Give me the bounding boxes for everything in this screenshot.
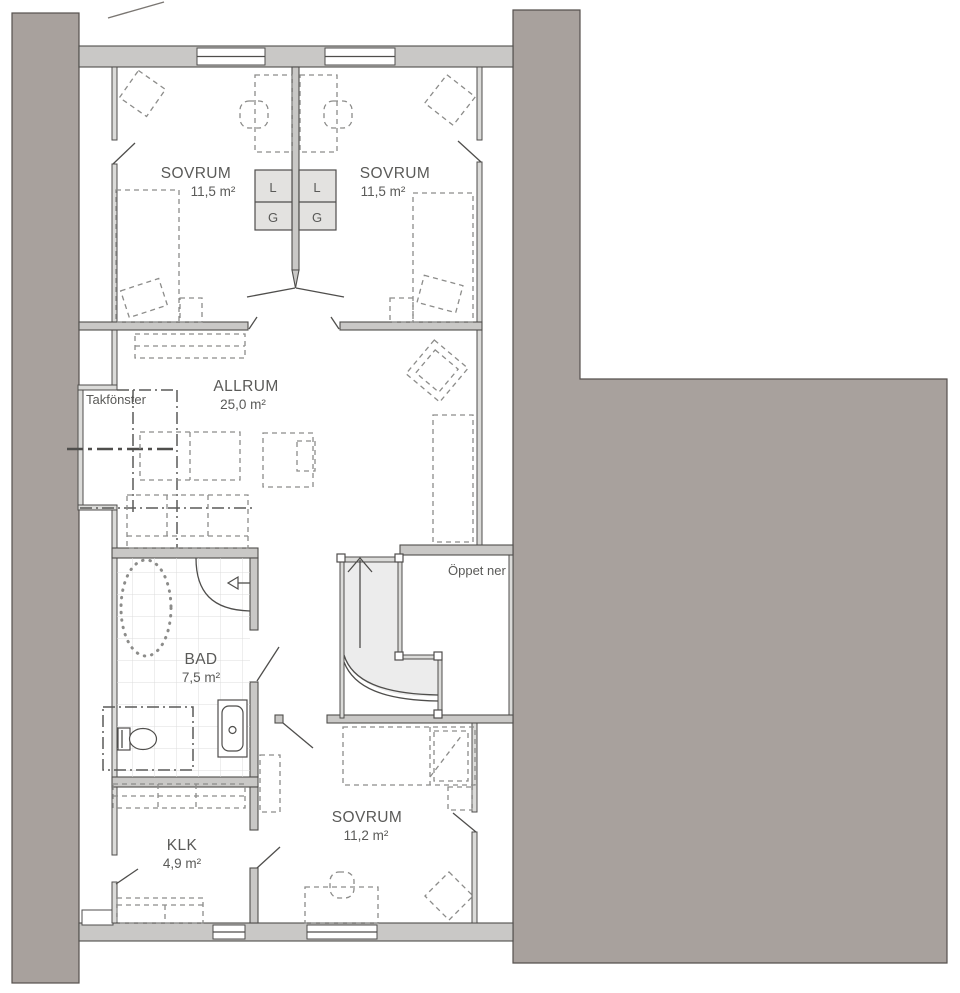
- wall-divider-tip: [292, 270, 299, 288]
- chair-icon: [330, 872, 354, 898]
- wall-bath-klk: [112, 777, 258, 787]
- floor-plan-drawing: L G L G: [0, 0, 960, 993]
- room-area-sovrum-left: 11,5 m²: [191, 184, 236, 199]
- wall-jog-top: [78, 385, 117, 390]
- door-storage-bottom-right: [453, 813, 476, 832]
- armchair-icon: [120, 71, 166, 117]
- knee-wall-right-a: [477, 67, 482, 140]
- staircase: [337, 554, 442, 718]
- bed-icon: [343, 727, 475, 785]
- knee-wall-left-c: [112, 510, 117, 548]
- door-sovrum-right: [296, 288, 344, 297]
- door-storage-top-right: [458, 141, 481, 162]
- desk-icon: [300, 75, 337, 152]
- nightstand-icon: [448, 787, 472, 810]
- bed-icon: [116, 190, 179, 322]
- wall-end-cap-left: [249, 317, 257, 329]
- wall-bottom: [79, 923, 513, 941]
- room-label-sovrum-left: SOVRUM: [161, 165, 231, 182]
- room-area-bad: 7,5 m²: [182, 670, 221, 685]
- window-top-right: [325, 48, 395, 65]
- door-sovrum-left: [247, 288, 295, 297]
- roof-right-block: [513, 10, 947, 963]
- sink-icon: [218, 700, 247, 757]
- wall-allrum-stairwell: [400, 545, 513, 555]
- railing-post: [434, 710, 442, 718]
- door-sovrum-bottom: [283, 723, 313, 748]
- wall-klk-east-lower: [250, 868, 258, 923]
- furniture-allrum: [127, 334, 473, 548]
- room-label-klk: KLK: [167, 837, 198, 854]
- knee-wall-left-e: [112, 882, 117, 923]
- tv-bench-icon: [140, 432, 240, 480]
- shelf-icon: [260, 755, 280, 812]
- wall-stair-bedroom: [327, 715, 513, 723]
- knee-wall-right-b: [477, 162, 482, 545]
- annotation-skylight: Takfönster: [86, 392, 147, 407]
- railing-right: [438, 659, 442, 715]
- closet-letter-l-right: L: [313, 180, 320, 195]
- roof-left-strip: [12, 13, 79, 983]
- gable-storage-window: [82, 910, 113, 925]
- room-area-sovrum-right: 11,5 m²: [361, 184, 406, 199]
- railing-post: [434, 652, 442, 660]
- room-area-sovrum-bottom: 11,2 m²: [344, 828, 389, 843]
- wall-bedroom-divider: [292, 67, 299, 270]
- railing-top: [344, 557, 400, 562]
- bathroom: [103, 558, 250, 777]
- floor-plan: L G L G: [0, 0, 960, 993]
- nightstand-icon: [390, 298, 413, 322]
- room-label-sovrum-bottom: SOVRUM: [332, 809, 402, 826]
- wall-top: [79, 46, 513, 67]
- railing-left: [340, 557, 344, 718]
- closet-letter-g-right: G: [312, 210, 322, 225]
- desk-icon: [305, 887, 378, 923]
- interior-walls: [79, 67, 513, 923]
- wall-klk-east-upper: [250, 787, 258, 830]
- bookshelf-icon: [433, 415, 473, 542]
- window-top-left: [197, 48, 265, 65]
- door-storage-top-left: [113, 143, 135, 164]
- wall-stub-bedroom-door: [275, 715, 283, 723]
- closet-letter-l-left: L: [269, 180, 276, 195]
- skylight-lines: [67, 390, 253, 548]
- railing-post: [395, 652, 403, 660]
- wall-bedrooms-allrum-right: [340, 322, 482, 330]
- chair-icon: [324, 101, 352, 128]
- knee-wall-left-a: [112, 67, 117, 140]
- wardrobe-icon: [113, 784, 245, 808]
- desk-icon: [255, 75, 292, 152]
- door-klk: [257, 847, 280, 868]
- room-area-allrum: 25,0 m²: [220, 397, 266, 412]
- bed-icon: [413, 193, 473, 322]
- toilet-icon: [118, 728, 157, 750]
- railing-post: [337, 554, 345, 562]
- roof-ridge-line: [108, 2, 164, 18]
- room-area-klk: 4,9 m²: [163, 856, 202, 871]
- wall-end-cap-right: [331, 317, 339, 329]
- annotation-open-below: Öppet ner: [448, 563, 506, 578]
- wall-allrum-bath: [112, 548, 258, 558]
- wall-bath-east-lower: [250, 682, 258, 777]
- door-bad: [257, 647, 279, 681]
- stairwell-right-edge: [509, 555, 513, 723]
- sideboard-icon: [135, 334, 245, 358]
- window-bottom-small: [213, 925, 245, 939]
- railing-inner-vertical: [398, 562, 402, 657]
- railing-post: [395, 554, 403, 562]
- room-label-sovrum-right: SOVRUM: [360, 165, 430, 182]
- dresser-icon: [117, 898, 203, 923]
- railing-inner-horizontal: [402, 655, 438, 659]
- lounge-chair-icon: [406, 340, 468, 402]
- wall-bath-east-upper: [250, 558, 258, 630]
- door-storage-klk: [116, 869, 138, 884]
- sofa-icon: [127, 495, 248, 548]
- armchair-icon: [425, 75, 476, 126]
- armchair-icon: [425, 872, 473, 920]
- nightstand-icon: [180, 298, 202, 322]
- closet-letter-g-left: G: [268, 210, 278, 225]
- window-bottom-large: [307, 925, 377, 939]
- room-label-allrum: ALLRUM: [213, 378, 278, 395]
- room-label-bad: BAD: [184, 651, 217, 668]
- wall-bedrooms-allrum-left: [79, 322, 248, 330]
- chair-icon: [240, 101, 268, 128]
- knee-wall-right-d: [472, 832, 477, 923]
- armchair-footstool-icon: [263, 433, 315, 487]
